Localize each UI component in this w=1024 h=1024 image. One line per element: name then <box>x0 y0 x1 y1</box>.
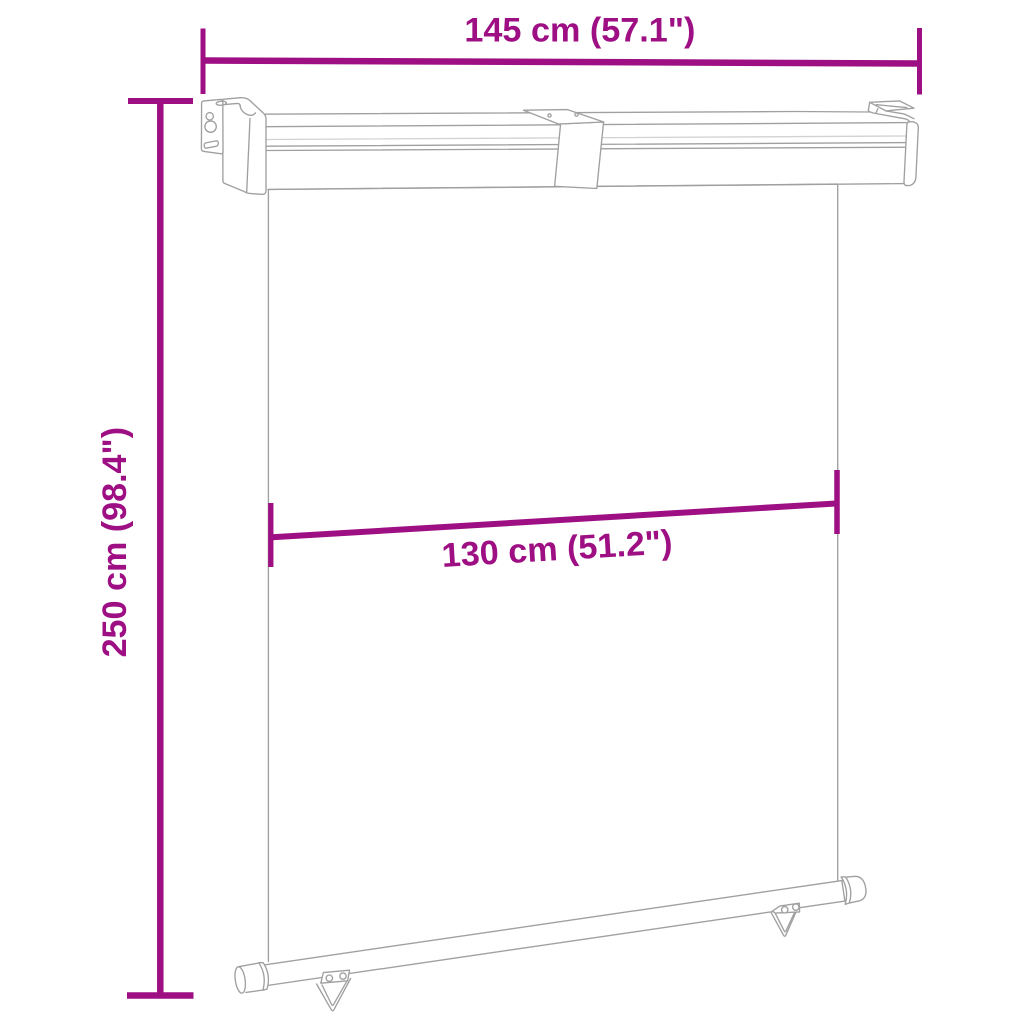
svg-text:145 cm (57.1"): 145 cm (57.1") <box>464 12 695 50</box>
svg-text:250 cm (98.4"): 250 cm (98.4") <box>96 427 134 658</box>
